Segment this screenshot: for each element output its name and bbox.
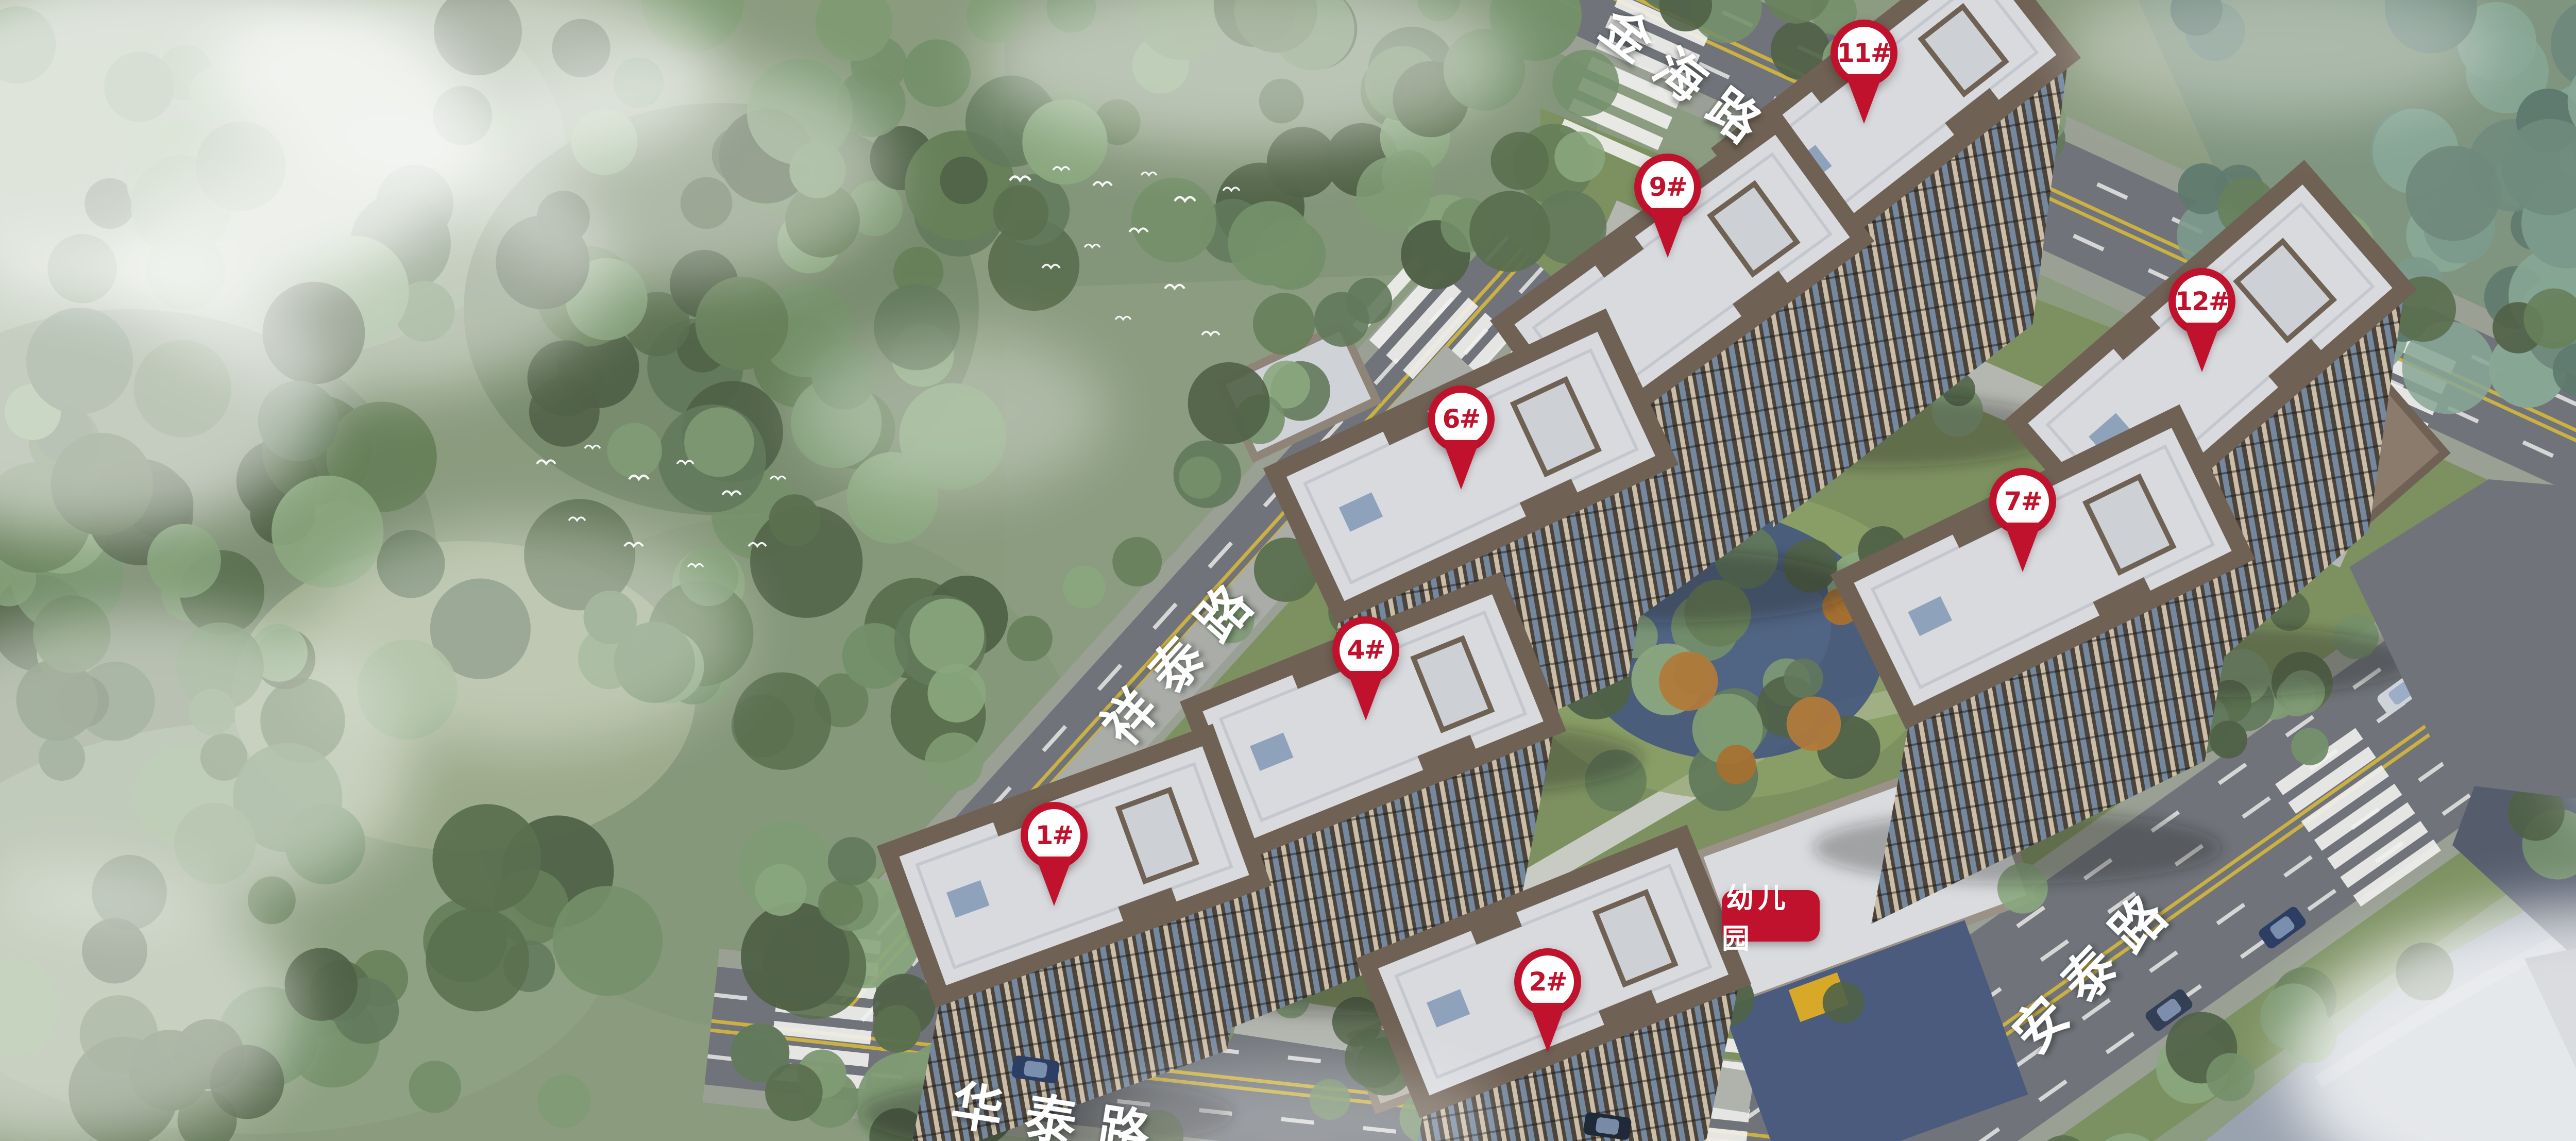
tree [1112, 537, 1162, 586]
tree [940, 157, 988, 205]
tree [553, 886, 663, 996]
tree [529, 376, 600, 447]
kindergarten-badge[interactable]: 幼儿园 [1722, 890, 1820, 942]
tree [2206, 1053, 2255, 1101]
building-marker-6[interactable]: 6# [1420, 385, 1502, 490]
tree [684, 407, 754, 477]
marker-tail [1529, 1003, 1566, 1052]
tree [925, 732, 984, 791]
tree [1787, 696, 1841, 751]
tree [873, 1005, 921, 1053]
tree [2291, 728, 2329, 765]
tree [696, 277, 789, 370]
building-marker-1[interactable]: 1# [1013, 802, 1095, 906]
tree [765, 1064, 823, 1121]
tree [1188, 362, 1270, 444]
aerial-masterplan-rendering: 金海路 祥泰路 安泰路 华泰路 幼儿园 鸟瞰图 1# 2# 4# 6# 7# 9… [0, 0, 2576, 1141]
tree [910, 598, 985, 673]
tree [1253, 293, 1315, 355]
tree [1346, 278, 1392, 324]
marker-tail [1036, 857, 1073, 906]
tree [1823, 982, 1864, 1023]
tree [2210, 720, 2248, 759]
tree [432, 804, 541, 913]
tree [769, 494, 821, 546]
marker-label: 4# [1347, 635, 1385, 665]
tree [607, 423, 662, 478]
marker-tail [1443, 440, 1480, 490]
tree [1659, 652, 1718, 711]
tree [1131, 178, 1216, 263]
tree [755, 864, 806, 916]
tree [1228, 201, 1312, 286]
tree [426, 908, 529, 1012]
building-marker-11[interactable]: 11# [1823, 20, 1905, 124]
tree [537, 1075, 590, 1128]
marker-tail [1649, 208, 1686, 258]
marker-tail [1347, 671, 1384, 720]
marker-label: 2# [1529, 967, 1567, 997]
marker-label: 6# [1443, 404, 1480, 434]
tree [734, 673, 831, 770]
marker-tail [2004, 523, 2041, 572]
tree [1469, 191, 1550, 272]
marker-label: 9# [1649, 172, 1687, 202]
tree [147, 524, 221, 598]
marker-label: 7# [2004, 486, 2042, 516]
building-marker-2[interactable]: 2# [1506, 948, 1589, 1052]
tree [1554, 131, 1605, 182]
tree [993, 185, 1049, 241]
tree [1490, 132, 1549, 190]
tree [903, 39, 971, 107]
tree [2405, 146, 2501, 241]
tree [1784, 659, 1823, 698]
building-marker-4[interactable]: 4# [1325, 616, 1407, 720]
marker-label: 11# [1837, 38, 1891, 68]
tree [828, 837, 876, 885]
scenery-canvas [0, 0, 2576, 1141]
marker-tail [1845, 74, 1883, 124]
marker-tail [2183, 323, 2221, 372]
tree [818, 881, 863, 926]
tree [1357, 157, 1431, 231]
tree [1179, 457, 1221, 499]
marker-label: 12# [2175, 287, 2229, 316]
building-marker-7[interactable]: 7# [1981, 468, 2064, 572]
tree [1007, 616, 1053, 662]
tree [1717, 745, 1756, 784]
building-marker-12[interactable]: 12# [2161, 268, 2243, 372]
tree [409, 1061, 461, 1113]
marker-label: 1# [1036, 820, 1073, 850]
tree [1063, 566, 1106, 609]
building-marker-9[interactable]: 9# [1626, 154, 1709, 258]
tree [927, 664, 986, 722]
